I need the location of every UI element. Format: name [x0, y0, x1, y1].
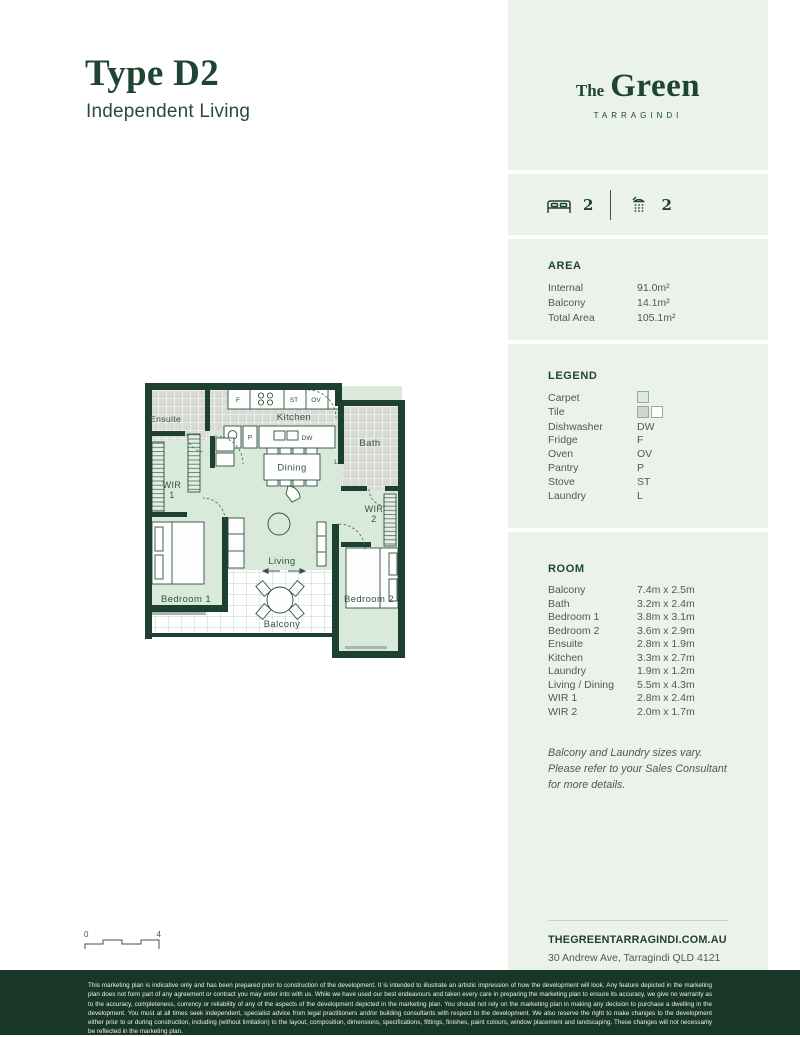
room-row: WIR 12.8m x 2.4m	[548, 692, 728, 706]
marker-pantry: P	[248, 435, 252, 442]
label-ensuite: Ensuite	[150, 414, 181, 424]
legend-code: L	[637, 490, 643, 504]
legend-row: DishwasherDW	[548, 421, 728, 435]
bed-icon	[546, 195, 572, 214]
tile-swatch	[637, 406, 663, 421]
area-value: 14.1m²	[637, 296, 670, 311]
marker-oven: OV	[311, 397, 321, 404]
legend-row: StoveST	[548, 476, 728, 490]
brand-wordmark: The Green	[576, 68, 700, 105]
stats-bar: 2 2	[508, 174, 768, 235]
page-title: Type D2	[85, 52, 219, 95]
room-row: Balcony7.4m x 2.5m	[548, 584, 728, 598]
label-wir2: WIR	[365, 504, 384, 514]
shower-icon	[628, 194, 650, 215]
scale-bar: 0 4	[82, 928, 166, 952]
area-section: AREA Internal91.0m² Balcony14.1m² Total …	[508, 239, 768, 340]
label-wir1-num: 1	[169, 490, 174, 500]
bathroom-count: 2	[661, 196, 671, 214]
area-value: 91.0m²	[637, 281, 670, 296]
label-dining: Dining	[277, 463, 306, 474]
brand-green: Green	[610, 68, 700, 105]
room-dims: 3.3m x 2.7m	[637, 652, 695, 666]
label-kitchen: Kitchen	[277, 412, 312, 423]
legend-heading: LEGEND	[548, 370, 728, 382]
label-bath: Bath	[359, 438, 380, 449]
disclaimer-text: This marketing plan is indicative only a…	[88, 981, 712, 1037]
room-label: Bath	[548, 598, 637, 612]
legend-section: LEGEND Carpet Tile DishwasherDW FridgeF …	[508, 344, 768, 528]
legend-code: ST	[637, 476, 650, 490]
scale-max: 4	[157, 930, 162, 939]
legend-row: Carpet	[548, 391, 728, 406]
legend-row: Tile	[548, 406, 728, 421]
label-balcony: Balcony	[264, 619, 301, 630]
area-label: Balcony	[548, 296, 637, 311]
room-dims: 2.8m x 2.4m	[637, 692, 695, 706]
legend-label: Tile	[548, 406, 637, 420]
page-subtitle: Independent Living	[86, 101, 250, 123]
room-label: Kitchen	[548, 652, 637, 666]
room-dims: 3.6m x 2.9m	[637, 625, 695, 639]
legend-label: Pantry	[548, 462, 637, 476]
room-label: Balcony	[548, 584, 637, 598]
room-label: Ensuite	[548, 638, 637, 652]
scale-line	[85, 940, 159, 949]
room-row: Kitchen3.3m x 2.7m	[548, 652, 728, 666]
room-dims: 7.4m x 2.5m	[637, 584, 695, 598]
area-heading: AREA	[548, 260, 728, 272]
brand-logo: The Green TARRAGINDI	[508, 0, 768, 170]
room-label: Laundry	[548, 665, 637, 679]
footer: This marketing plan is indicative only a…	[0, 970, 800, 1035]
marker-fridge: F	[236, 397, 240, 404]
room-dims: 3.2m x 2.4m	[637, 598, 695, 612]
room-label: Bedroom 2	[548, 625, 637, 639]
room-dims: 1.9m x 1.2m	[637, 665, 695, 679]
legend-code: P	[637, 462, 644, 476]
website-link[interactable]: THEGREENTARRAGINDI.COM.AU	[548, 934, 728, 946]
room-section: ROOM Balcony7.4m x 2.5m Bath3.2m x 2.4m …	[508, 532, 768, 970]
marker-laundry: L	[334, 459, 338, 466]
room-row: Bedroom 23.6m x 2.9m	[548, 625, 728, 639]
legend-code: F	[637, 434, 643, 448]
marker-dishwasher: DW	[302, 435, 314, 442]
legend-row: PantryP	[548, 462, 728, 476]
legend-label: Laundry	[548, 490, 637, 504]
room-row: Bath3.2m x 2.4m	[548, 598, 728, 612]
area-label: Total Area	[548, 311, 637, 326]
address-text: 30 Andrew Ave, Tarragindi QLD 4121	[548, 952, 728, 964]
room-row: Living / Dining5.5m x 4.3m	[548, 679, 728, 693]
legend-label: Fridge	[548, 434, 637, 448]
bedroom-count: 2	[583, 196, 593, 214]
legend-row: LaundryL	[548, 490, 728, 504]
room-dims: 2.8m x 1.9m	[637, 638, 695, 652]
floorplan: Ensuite Kitchen Bath WIR 1 WIR 2 Dining …	[142, 374, 408, 658]
sidebar: The Green TARRAGINDI 2	[508, 0, 768, 970]
label-bedroom2: Bedroom 2	[344, 594, 394, 605]
area-label: Internal	[548, 281, 637, 296]
brand-location: TARRAGINDI	[594, 111, 683, 120]
room-row: Ensuite2.8m x 1.9m	[548, 638, 728, 652]
label-bedroom1: Bedroom 1	[161, 594, 211, 605]
legend-row: FridgeF	[548, 434, 728, 448]
room-label: WIR 1	[548, 692, 637, 706]
area-row: Balcony14.1m²	[548, 296, 728, 311]
stats-divider	[610, 190, 611, 220]
brand-the: The	[576, 81, 604, 101]
sizes-note: Balcony and Laundry sizes vary. Please r…	[548, 745, 728, 793]
area-row: Total Area105.1m²	[548, 311, 728, 326]
room-row: Laundry1.9m x 1.2m	[548, 665, 728, 679]
room-dims: 3.8m x 3.1m	[637, 611, 695, 625]
label-wir2-num: 2	[371, 514, 376, 524]
legend-code: OV	[637, 448, 652, 462]
marker-stove: ST	[290, 397, 298, 404]
legend-row: OvenOV	[548, 448, 728, 462]
legend-label: Dishwasher	[548, 421, 637, 435]
room-label: Living / Dining	[548, 679, 637, 693]
room-row: Bedroom 13.8m x 3.1m	[548, 611, 728, 625]
legend-label: Stove	[548, 476, 637, 490]
carpet-swatch	[637, 391, 649, 406]
room-dims: 5.5m x 4.3m	[637, 679, 695, 693]
legend-label: Carpet	[548, 392, 637, 406]
room-label: WIR 2	[548, 706, 637, 720]
label-wir1: WIR	[163, 480, 182, 490]
area-value: 105.1m²	[637, 311, 676, 326]
scale-min: 0	[84, 930, 89, 939]
label-living: Living	[268, 556, 295, 567]
room-label: Bedroom 1	[548, 611, 637, 625]
legend-code: DW	[637, 421, 655, 435]
room-dims: 2.0m x 1.7m	[637, 706, 695, 720]
contact-block: THEGREENTARRAGINDI.COM.AU 30 Andrew Ave,…	[548, 920, 728, 964]
contact-divider	[548, 920, 728, 921]
room-heading: ROOM	[548, 563, 728, 575]
area-row: Internal91.0m²	[548, 281, 728, 296]
legend-label: Oven	[548, 448, 637, 462]
room-row: WIR 22.0m x 1.7m	[548, 706, 728, 720]
